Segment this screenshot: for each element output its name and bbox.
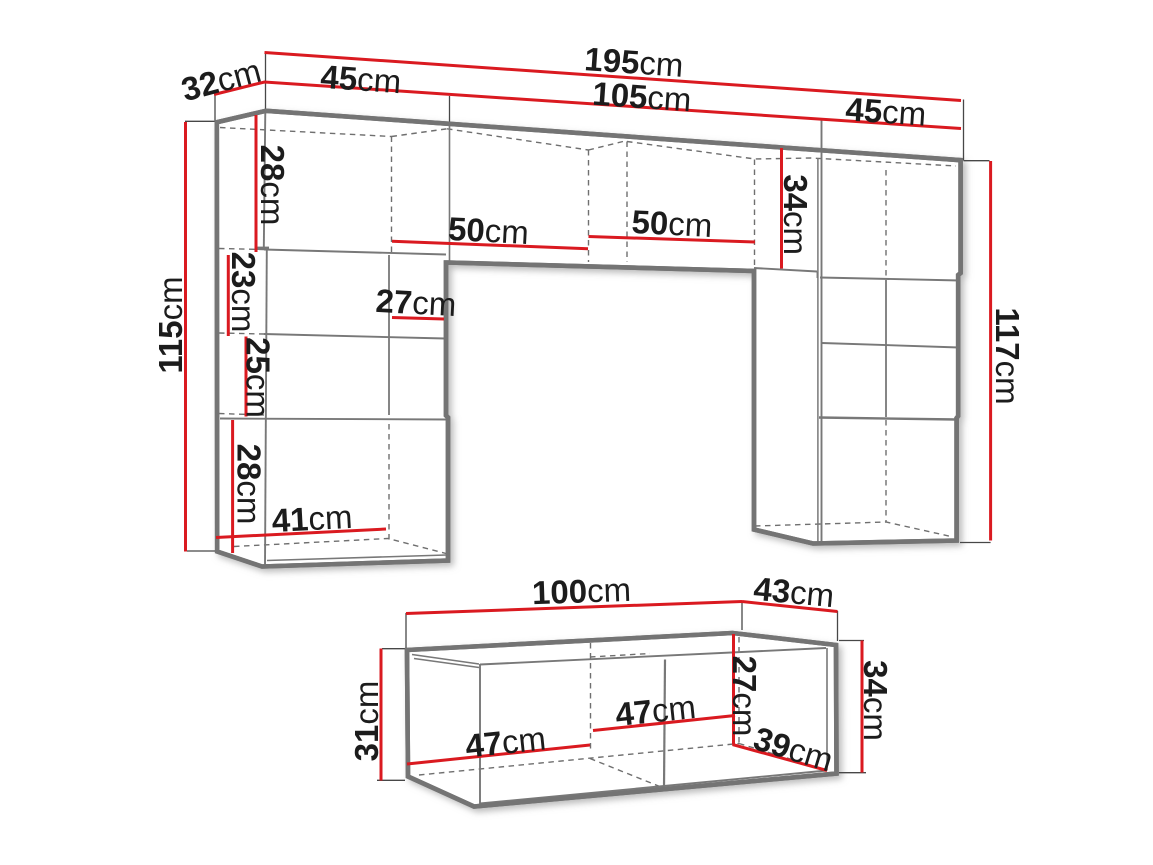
svg-text:25cm: 25cm xyxy=(240,337,277,418)
svg-text:27cm: 27cm xyxy=(375,282,458,323)
svg-text:43cm: 43cm xyxy=(752,570,836,614)
svg-text:45cm: 45cm xyxy=(319,58,402,100)
svg-text:105cm: 105cm xyxy=(591,75,692,119)
svg-text:34cm: 34cm xyxy=(857,660,894,741)
svg-text:117cm: 117cm xyxy=(989,307,1026,404)
svg-text:27cm: 27cm xyxy=(726,656,763,737)
svg-text:41cm: 41cm xyxy=(271,498,354,539)
svg-text:100cm: 100cm xyxy=(531,571,631,611)
svg-text:34cm: 34cm xyxy=(777,174,814,255)
svg-text:115cm: 115cm xyxy=(152,276,189,373)
svg-text:45cm: 45cm xyxy=(844,90,927,132)
svg-text:50cm: 50cm xyxy=(631,203,714,244)
svg-text:23cm: 23cm xyxy=(225,252,262,333)
svg-text:28cm: 28cm xyxy=(254,145,291,226)
svg-text:31cm: 31cm xyxy=(348,681,385,762)
svg-text:28cm: 28cm xyxy=(231,444,268,525)
svg-text:50cm: 50cm xyxy=(447,210,530,251)
